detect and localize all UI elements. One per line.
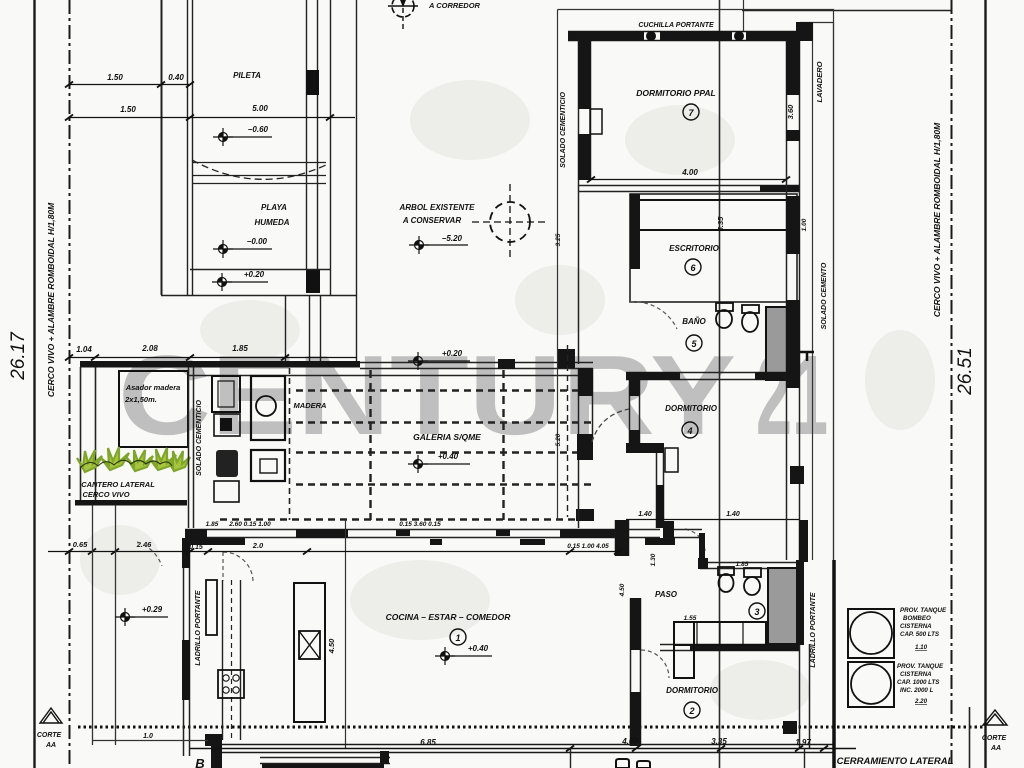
svg-text:A CONSERVAR: A CONSERVAR [402,216,461,225]
svg-text:CERCO VIVO: CERCO VIVO [82,490,129,499]
svg-text:LADRILLO PORTANTE: LADRILLO PORTANTE [810,592,817,668]
svg-text:2.20: 2.20 [914,698,928,705]
svg-text:1: 1 [455,633,460,643]
svg-text:–0.60: –0.60 [248,125,269,134]
svg-text:+0.20: +0.20 [442,349,463,358]
svg-text:CERRAMIENTO LATERAL: CERRAMIENTO LATERAL [837,756,954,767]
svg-text:CISTERNA: CISTERNA [900,671,932,678]
svg-text:+0.29: +0.29 [142,605,163,614]
svg-text:CUCHILLA PORTANTE: CUCHILLA PORTANTE [638,22,714,29]
svg-text:4.50: 4.50 [619,583,626,597]
svg-text:2.60 0.15 1.00: 2.60 0.15 1.00 [228,521,271,528]
svg-text:+0.20: +0.20 [244,270,265,279]
svg-text:2x1,50m.: 2x1,50m. [124,395,157,404]
svg-text:5.00: 5.00 [252,104,268,113]
svg-text:26.51: 26.51 [955,347,976,396]
svg-text:0.15: 0.15 [189,544,203,551]
svg-text:B: B [195,756,204,768]
svg-text:0.65: 0.65 [73,540,88,549]
svg-text:2: 2 [688,706,694,716]
svg-text:LADRILLO PORTANTE: LADRILLO PORTANTE [195,590,202,666]
svg-text:6.85: 6.85 [420,738,436,747]
svg-text:3: 3 [754,607,759,617]
svg-text:AA: AA [990,745,1001,752]
svg-text:1.50: 1.50 [120,105,136,114]
svg-text:1.50: 1.50 [107,73,123,82]
svg-text:CORTE: CORTE [37,732,62,739]
svg-text:CANTERO LATERAL: CANTERO LATERAL [81,480,155,489]
svg-text:DORMITORIO: DORMITORIO [665,404,718,413]
svg-text:PROV. TANQUE: PROV. TANQUE [897,663,944,670]
svg-text:+0.40: +0.40 [468,644,489,653]
svg-text:3.25: 3.25 [555,233,562,246]
svg-text:PROV. TANQUE: PROV. TANQUE [900,607,947,614]
svg-text:1.0: 1.0 [143,733,153,740]
svg-text:ARBOL EXISTENTE: ARBOL EXISTENTE [399,203,476,212]
svg-text:26.17: 26.17 [8,331,29,381]
svg-text:3.60: 3.60 [786,104,795,119]
svg-text:1.97: 1.97 [795,738,811,747]
svg-text:1.85: 1.85 [736,561,749,568]
svg-text:2.08: 2.08 [141,344,158,353]
svg-text:CERCO VIVO + ALAMBRE ROMBOIDAL: CERCO VIVO + ALAMBRE ROMBOIDAL H/1,80M [932,122,942,317]
svg-text:0.15 3.60 0.15: 0.15 3.60 0.15 [399,521,441,528]
svg-text:CAP. 1000 LTS: CAP. 1000 LTS [897,679,940,686]
svg-text:CAP. 500 LTS: CAP. 500 LTS [900,631,940,638]
svg-text:DORMITORIO PPAL: DORMITORIO PPAL [636,88,716,98]
svg-text:BAÑO: BAÑO [682,317,706,326]
svg-text:CORTE: CORTE [982,735,1007,742]
svg-text:–0.00: –0.00 [247,237,268,246]
svg-text:PASO: PASO [655,590,678,599]
svg-text:AA: AA [45,742,56,749]
svg-text:1.30: 1.30 [650,553,657,566]
svg-text:0.15 1.00 4.05: 0.15 1.00 4.05 [567,543,609,550]
svg-text:PLAYA: PLAYA [261,203,287,212]
svg-text:1.85: 1.85 [232,344,248,353]
svg-text:1.10: 1.10 [915,644,928,651]
svg-text:Asador madera: Asador madera [125,383,181,392]
svg-text:5.35: 5.35 [716,216,725,231]
svg-text:HUMEDA: HUMEDA [254,218,289,227]
svg-text:1.40: 1.40 [638,511,652,518]
svg-text:3.35: 3.35 [711,737,727,746]
svg-text:CERCO VIVO + ALAMBRE ROMBOIDAL: CERCO VIVO + ALAMBRE ROMBOIDAL H/1,80M [46,202,56,397]
svg-text:CISTERNA: CISTERNA [900,623,932,630]
svg-text:DORMITORIO: DORMITORIO [666,686,719,695]
svg-text:A CORREDOR: A CORREDOR [428,1,481,10]
svg-text:ESCRITORIO: ESCRITORIO [669,244,719,253]
svg-text:1.55: 1.55 [684,615,697,622]
svg-text:COCINA – ESTAR – COMEDOR: COCINA – ESTAR – COMEDOR [386,612,512,622]
svg-text:+0.40: +0.40 [438,452,459,461]
svg-text:4.07: 4.07 [621,737,638,746]
svg-text:LAVADERO: LAVADERO [815,61,824,102]
svg-text:BOMBEO: BOMBEO [903,615,931,622]
svg-text:5.20: 5.20 [555,433,562,446]
svg-text:1.85: 1.85 [206,521,219,528]
svg-text:INC. 2000 L: INC. 2000 L [900,687,934,694]
svg-text:1.00: 1.00 [801,218,808,231]
svg-text:4: 4 [686,426,692,436]
svg-text:GALERIA S/QME: GALERIA S/QME [413,432,481,442]
svg-text:4.50: 4.50 [327,638,336,654]
svg-text:0.40: 0.40 [168,73,184,82]
svg-text:2.0: 2.0 [252,541,264,550]
svg-text:SOLADO CEMENTICIO: SOLADO CEMENTICIO [196,400,203,476]
svg-text:–5.20: –5.20 [442,234,463,243]
svg-text:PILETA: PILETA [233,71,261,80]
svg-text:MADERA: MADERA [294,401,327,410]
svg-text:1.04: 1.04 [76,345,92,354]
svg-text:SOLADO CEMENTO: SOLADO CEMENTO [821,262,828,329]
svg-text:4.00: 4.00 [681,168,698,177]
svg-text:1.40: 1.40 [726,511,740,518]
svg-text:SOLADO CEMENTICIO: SOLADO CEMENTICIO [560,92,567,168]
